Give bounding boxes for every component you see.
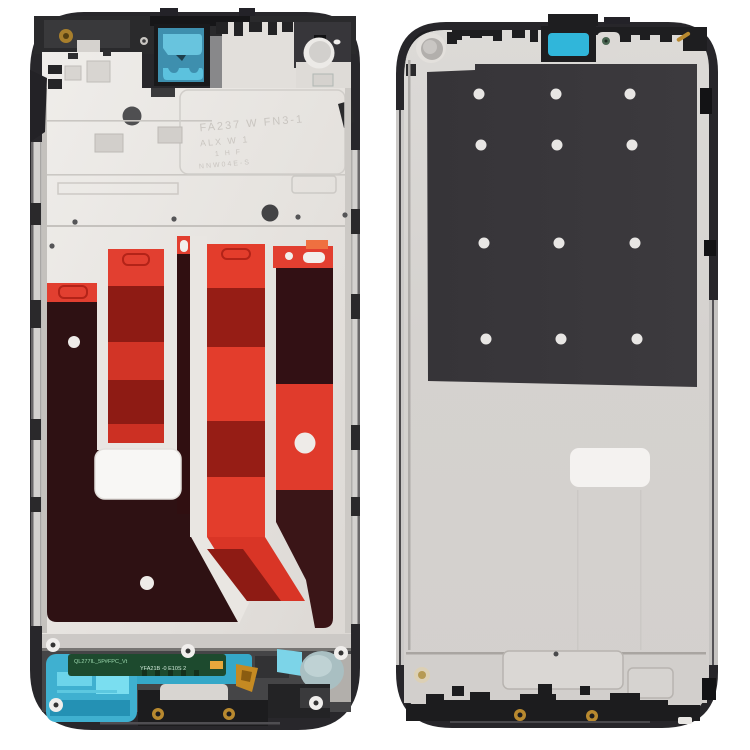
- svg-text:QL277IL_5P#FPC_Vt: QL277IL_5P#FPC_Vt: [74, 659, 128, 665]
